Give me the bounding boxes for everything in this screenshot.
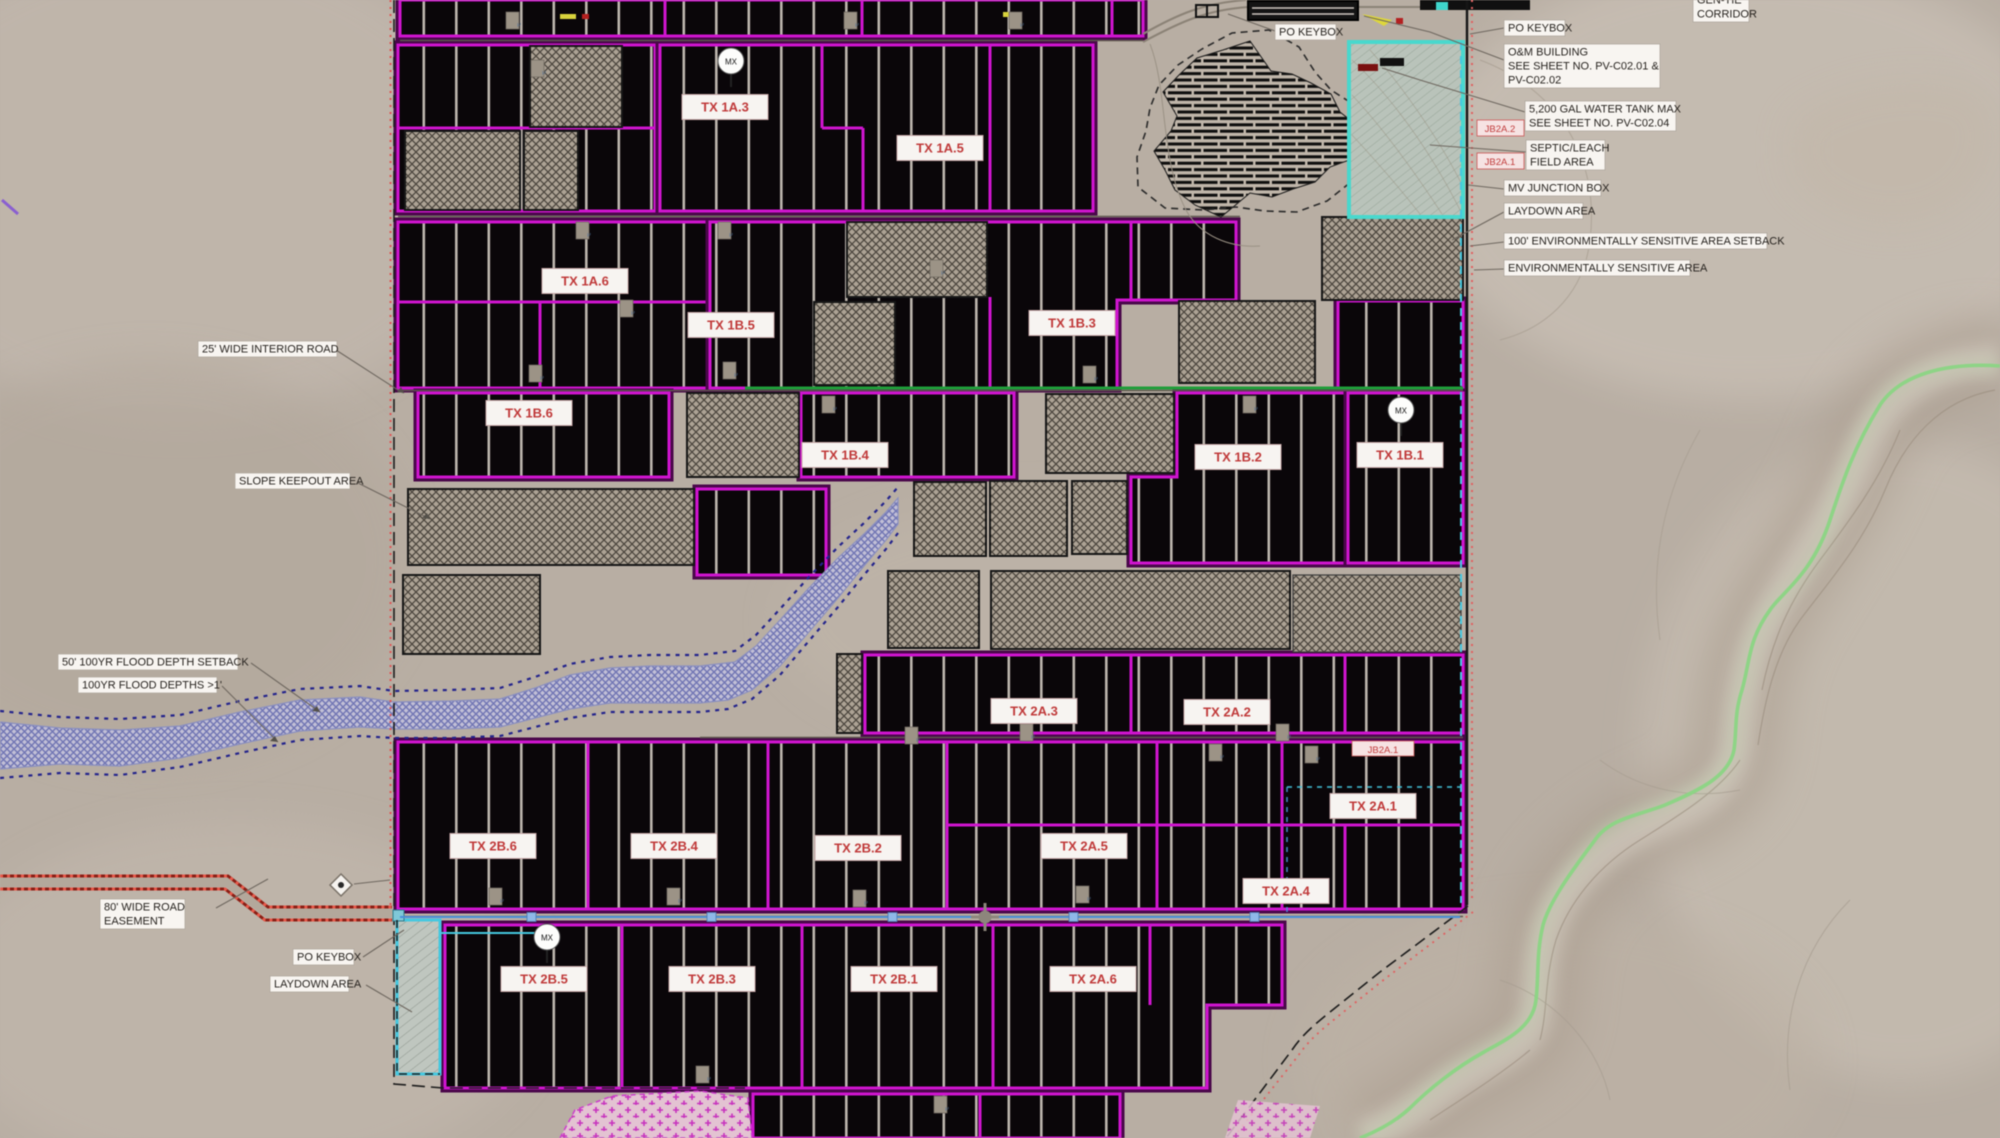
- svg-text:PO KEYBOX: PO KEYBOX: [1508, 23, 1573, 35]
- svg-text:TX 1A.5: TX 1A.5: [916, 141, 964, 156]
- svg-text:JB2A.2: JB2A.2: [1485, 124, 1516, 135]
- svg-text:P: P: [587, 233, 591, 239]
- svg-text:TX 1A.6: TX 1A.6: [561, 274, 609, 289]
- svg-text:P: P: [1087, 897, 1091, 903]
- svg-text:P: P: [945, 1107, 949, 1113]
- svg-text:O&M BUILDING: O&M BUILDING: [1508, 47, 1588, 59]
- svg-text:CORRIDOR: CORRIDOR: [1697, 9, 1757, 21]
- svg-text:EASEMENT: EASEMENT: [104, 916, 165, 928]
- svg-text:MV JUNCTION BOX: MV JUNCTION BOX: [1508, 183, 1610, 195]
- svg-text:TX 2B.1: TX 2B.1: [870, 972, 918, 987]
- svg-text:LAYDOWN AREA: LAYDOWN AREA: [274, 979, 362, 991]
- svg-text:P: P: [916, 738, 920, 744]
- svg-text:P: P: [1254, 407, 1258, 413]
- svg-text:P: P: [631, 311, 635, 317]
- svg-text:TX 1A.3: TX 1A.3: [701, 100, 749, 115]
- svg-text:P: P: [678, 899, 682, 905]
- svg-text:TX 2A.6: TX 2A.6: [1069, 972, 1117, 987]
- svg-text:LAYDOWN AREA: LAYDOWN AREA: [1508, 206, 1596, 218]
- svg-text:TX 2B.4: TX 2B.4: [650, 839, 698, 854]
- svg-text:MX: MX: [1395, 407, 1408, 416]
- svg-text:PO KEYBOX: PO KEYBOX: [297, 952, 362, 964]
- svg-text:PO KEYBOX: PO KEYBOX: [1279, 27, 1344, 39]
- svg-text:P: P: [1020, 23, 1024, 29]
- svg-text:SEE SHEET NO. PV-C02.01 &: SEE SHEET NO. PV-C02.01 &: [1508, 61, 1659, 73]
- svg-text:TX 2A.2: TX 2A.2: [1203, 705, 1251, 720]
- svg-text:P: P: [855, 23, 859, 29]
- svg-text:JB2A.1: JB2A.1: [1485, 157, 1516, 168]
- svg-text:P: P: [542, 71, 546, 77]
- svg-text:TX 2B.2: TX 2B.2: [834, 841, 882, 856]
- svg-text:P: P: [1031, 735, 1035, 741]
- svg-text:TX 1B.6: TX 1B.6: [505, 406, 553, 421]
- svg-text:100' ENVIRONMENTALLY SENSITIVE: 100' ENVIRONMENTALLY SENSITIVE AREA SETB…: [1508, 236, 1785, 248]
- svg-text:P: P: [1287, 735, 1291, 741]
- svg-text:100YR FLOOD DEPTHS >1': 100YR FLOOD DEPTHS >1': [82, 680, 222, 692]
- svg-text:5,200 GAL WATER TANK MAX: 5,200 GAL WATER TANK MAX: [1529, 104, 1682, 116]
- svg-text:JB2A.1: JB2A.1: [1368, 745, 1399, 756]
- svg-text:TX 1B.3: TX 1B.3: [1048, 316, 1096, 331]
- svg-text:P: P: [707, 1077, 711, 1083]
- svg-text:P: P: [729, 233, 733, 239]
- svg-text:P: P: [500, 899, 504, 905]
- svg-text:GEN-TIE: GEN-TIE: [1697, 0, 1742, 7]
- svg-text:MX: MX: [541, 934, 554, 943]
- svg-text:25' WIDE INTERIOR ROAD: 25' WIDE INTERIOR ROAD: [202, 344, 339, 356]
- svg-text:ENVIRONMENTALLY SENSITIVE AREA: ENVIRONMENTALLY SENSITIVE AREA: [1508, 263, 1708, 275]
- svg-text:80' WIDE ROAD: 80' WIDE ROAD: [104, 902, 185, 914]
- svg-text:TX 1B.1: TX 1B.1: [1376, 448, 1424, 463]
- svg-text:P: P: [1316, 757, 1320, 763]
- svg-text:TX 1B.5: TX 1B.5: [707, 318, 755, 333]
- svg-text:MX: MX: [725, 58, 738, 67]
- svg-text:P: P: [1094, 377, 1098, 383]
- svg-text:TX 2B.3: TX 2B.3: [688, 972, 736, 987]
- svg-text:P: P: [941, 271, 945, 277]
- svg-text:P: P: [540, 376, 544, 382]
- svg-text:TX 1B.4: TX 1B.4: [821, 448, 869, 463]
- svg-text:TX 2A.3: TX 2A.3: [1010, 704, 1058, 719]
- svg-text:P: P: [517, 23, 521, 29]
- svg-text:P: P: [833, 407, 837, 413]
- svg-text:TX 1B.2: TX 1B.2: [1214, 450, 1262, 465]
- svg-text:TX 2B.6: TX 2B.6: [469, 839, 517, 854]
- svg-text:50' 100YR FLOOD DEPTH SETBACK: 50' 100YR FLOOD DEPTH SETBACK: [62, 657, 249, 669]
- svg-text:TX 2B.5: TX 2B.5: [520, 972, 568, 987]
- svg-text:SEPTIC/LEACH: SEPTIC/LEACH: [1530, 143, 1610, 155]
- svg-text:P: P: [864, 901, 868, 907]
- svg-text:TX 2A.1: TX 2A.1: [1349, 799, 1397, 814]
- svg-text:P: P: [734, 373, 738, 379]
- svg-text:P: P: [1220, 755, 1224, 761]
- svg-text:PV-C02.02: PV-C02.02: [1508, 75, 1561, 87]
- svg-text:TX 2A.5: TX 2A.5: [1060, 839, 1108, 854]
- svg-text:FIELD AREA: FIELD AREA: [1530, 157, 1594, 169]
- svg-text:SLOPE KEEPOUT AREA: SLOPE KEEPOUT AREA: [239, 476, 364, 488]
- svg-text:TX 2A.4: TX 2A.4: [1262, 884, 1310, 899]
- svg-text:SEE SHEET NO. PV-C02.04: SEE SHEET NO. PV-C02.04: [1529, 118, 1669, 130]
